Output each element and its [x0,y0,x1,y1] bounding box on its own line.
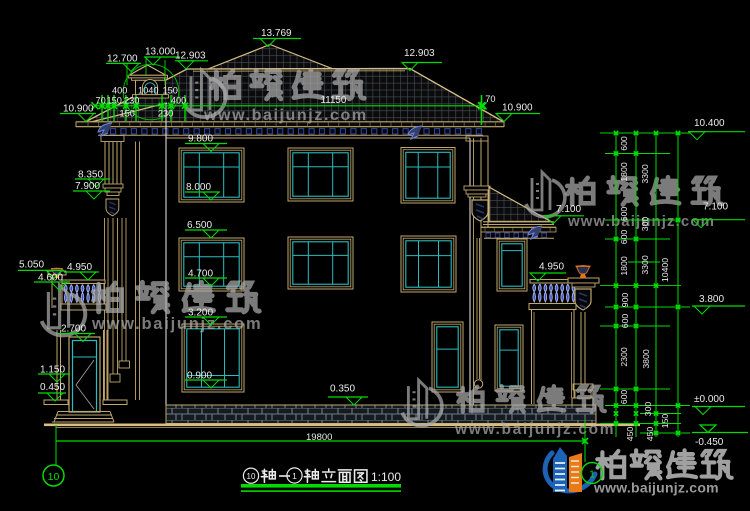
svg-text:13.000: 13.000 [145,47,176,58]
svg-text:150: 150 [120,108,135,118]
svg-text:13.769: 13.769 [261,28,292,39]
svg-text:2.700: 2.700 [61,324,86,335]
svg-text:150: 150 [107,95,122,105]
svg-text:4.950: 4.950 [67,262,92,273]
svg-text:450: 450 [645,427,655,442]
svg-text:600: 600 [620,314,630,329]
svg-text:19800: 19800 [306,432,332,443]
svg-text:10: 10 [247,472,256,481]
svg-text:150: 150 [660,414,670,429]
svg-text:3300: 3300 [640,164,650,183]
svg-text:7.100: 7.100 [703,202,728,213]
svg-text:www.baijunjz.com: www.baijunjz.com [454,421,615,438]
svg-text:300: 300 [643,402,653,417]
svg-text:600: 600 [619,390,629,405]
svg-text:1: 1 [589,470,595,481]
svg-text:300: 300 [640,217,650,232]
svg-text:150: 150 [163,85,178,95]
svg-text:230: 230 [158,108,173,118]
svg-text:3300: 3300 [640,255,650,274]
svg-text:1800: 1800 [619,256,629,275]
svg-text:www.baijunjz.com: www.baijunjz.com [91,315,262,333]
svg-text:0.450: 0.450 [40,382,65,393]
svg-text:0.350: 0.350 [330,384,355,395]
svg-text:10.900: 10.900 [63,104,94,115]
svg-text:±0.000: ±0.000 [694,394,725,405]
svg-text:70: 70 [96,95,106,105]
svg-text:600: 600 [619,136,629,151]
svg-text:10.900: 10.900 [502,103,533,114]
svg-text:5.050: 5.050 [19,260,44,271]
svg-text:9.800: 9.800 [188,134,213,145]
svg-text:11150: 11150 [321,95,347,106]
svg-text:4.950: 4.950 [539,262,564,273]
svg-text:900: 900 [620,293,630,308]
svg-text:600: 600 [619,207,629,222]
svg-text:-0.450: -0.450 [695,437,724,448]
svg-text:www.baijunjz.com: www.baijunjz.com [203,107,368,124]
svg-text:3800: 3800 [641,349,651,368]
svg-text:7.100: 7.100 [556,204,581,215]
svg-text:7.900: 7.900 [75,181,100,192]
svg-text:400: 400 [171,95,186,105]
svg-text:10.400: 10.400 [694,118,725,129]
svg-text:1: 1 [292,471,297,481]
svg-text:8.000: 8.000 [186,182,211,193]
svg-text:12.903: 12.903 [404,48,435,59]
svg-text:10: 10 [48,471,60,483]
svg-text:12.903: 12.903 [175,51,206,62]
svg-text:6.500: 6.500 [187,220,212,231]
svg-text:600: 600 [619,230,629,245]
svg-text:3.800: 3.800 [699,294,724,305]
svg-text:1:100: 1:100 [371,470,401,484]
svg-text:www.baijunjz.com: www.baijunjz.com [593,480,719,496]
svg-text:10400: 10400 [660,258,670,282]
svg-text:70: 70 [485,94,495,104]
svg-text:2300: 2300 [619,347,629,366]
svg-text:400: 400 [112,85,127,95]
svg-text:1040: 1040 [138,85,158,95]
svg-text:450: 450 [625,427,635,442]
svg-text:1800: 1800 [619,162,629,181]
svg-text:230: 230 [124,95,139,105]
